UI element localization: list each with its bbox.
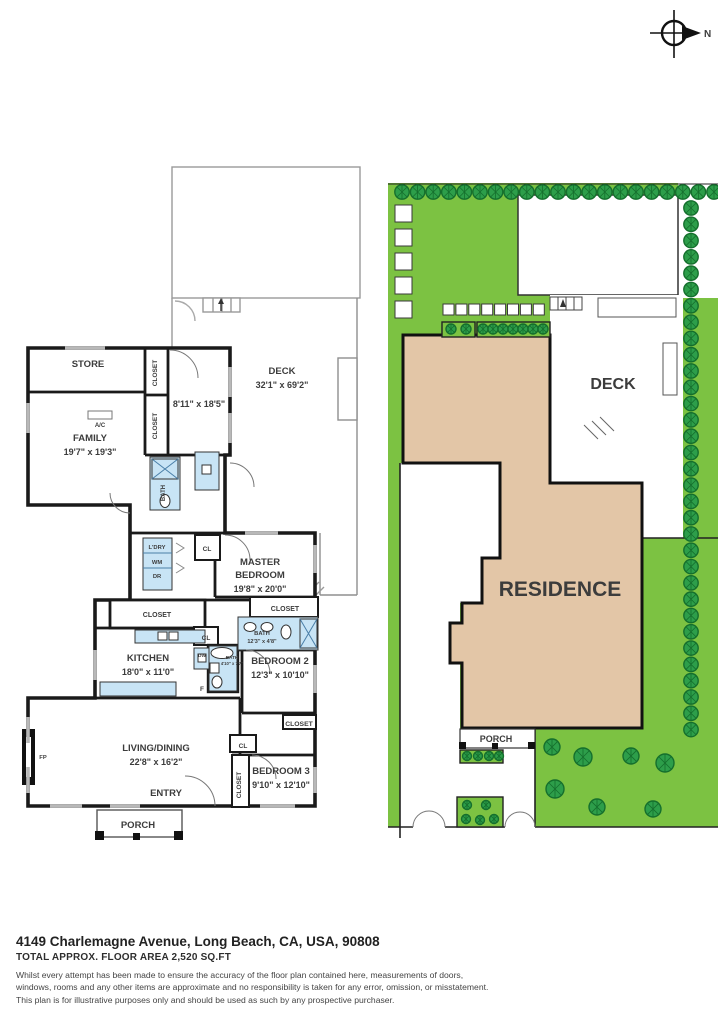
room-label: STORE <box>72 359 105 370</box>
room-label: PORCH <box>480 734 513 744</box>
room-label: BEDROOM <box>235 570 285 581</box>
disclaimer-line: Whilst every attempt has been made to en… <box>16 969 711 981</box>
room-label: BATH <box>161 485 167 501</box>
room-label: DECK <box>590 376 636 393</box>
paver-square <box>482 304 493 315</box>
paver-square <box>395 301 412 318</box>
paver-square <box>395 229 412 246</box>
room-label: CL <box>203 546 212 553</box>
paver-square <box>395 277 412 294</box>
room-label: ENTRY <box>150 788 183 799</box>
paver-square <box>469 304 480 315</box>
paver-square <box>456 304 467 315</box>
address: 4149 Charlemagne Avenue, Long Beach, CA,… <box>16 934 711 949</box>
room-label: FAMILY <box>73 433 108 444</box>
room-label: 12'3" x 10'10" <box>251 670 309 680</box>
room-label: DR <box>153 574 162 580</box>
site-plan: DECKRESIDENCEPORCH <box>388 183 718 838</box>
tree-icon <box>707 185 718 199</box>
room-label: BATH <box>226 655 239 660</box>
room-label: CLOSET <box>152 360 159 386</box>
compass-north-label: N <box>704 29 711 40</box>
room-label: 19'7" x 19'3" <box>64 447 117 457</box>
room-label: BEDROOM 2 <box>251 656 309 667</box>
room-label: 18'0" x 11'0" <box>122 667 174 677</box>
room-label: 12'3" x 4'8" <box>247 639 277 645</box>
room-label: MASTER <box>240 557 280 568</box>
room-label: CLOSET <box>236 772 243 798</box>
paver-square <box>443 304 454 315</box>
room-label: RESIDENCE <box>499 578 622 601</box>
compass-icon: N <box>630 8 722 66</box>
room-label: 8'11" x 18'5" <box>173 399 225 409</box>
room-label: KITCHEN <box>127 653 169 664</box>
room-label: DECK <box>269 366 296 377</box>
disclaimer-line: windows, rooms and any other items are a… <box>16 981 711 993</box>
room-label: BEDROOM 3 <box>252 766 310 777</box>
paver-square <box>395 253 412 270</box>
room-label: CL <box>202 635 211 642</box>
room-label: WM <box>152 560 162 566</box>
room-label: L'DRY <box>149 545 166 551</box>
room-label: 9'10" x 12'10" <box>252 780 310 790</box>
title-block: 4149 Charlemagne Avenue, Long Beach, CA,… <box>16 934 711 1006</box>
ac-unit <box>88 411 112 419</box>
paver-square <box>520 304 531 315</box>
floor-plan-sheet: N <box>0 0 724 1024</box>
floor-area: TOTAL APPROX. FLOOR AREA 2,520 SQ.FT <box>16 952 711 963</box>
room-label: CLOSET <box>271 606 300 613</box>
room-label: 19'8" x 20'0" <box>234 584 287 594</box>
room-label: LIVING/DINING <box>122 743 190 754</box>
disclaimer-line: This plan is for illustrative purposes o… <box>16 994 711 1006</box>
room-label: PORCH <box>121 820 155 831</box>
paver-square <box>495 304 506 315</box>
garage-outline <box>172 167 360 348</box>
paver-square <box>508 304 519 315</box>
room-label: 4'10" x 7'7" <box>221 661 243 666</box>
room-label: FP <box>39 755 47 761</box>
floor-plan: STORECLOSETCLOSETA/C8'11" x 18'5"FAMILY1… <box>10 145 375 875</box>
room-label: DW <box>198 653 206 659</box>
room-label: F <box>200 686 204 693</box>
room-label: CL <box>239 743 248 750</box>
room-label: A/C <box>95 423 106 429</box>
room-label: 32'1" x 69'2" <box>256 380 309 390</box>
paver-square <box>395 205 412 222</box>
paver-square <box>533 304 544 315</box>
room-label: CLOSET <box>143 612 172 619</box>
room-label: CLOSET <box>285 721 313 728</box>
room-label: CLOSET <box>152 413 159 439</box>
room-label: 22'8" x 16'2" <box>130 757 183 767</box>
room-label: BATH <box>254 631 270 637</box>
